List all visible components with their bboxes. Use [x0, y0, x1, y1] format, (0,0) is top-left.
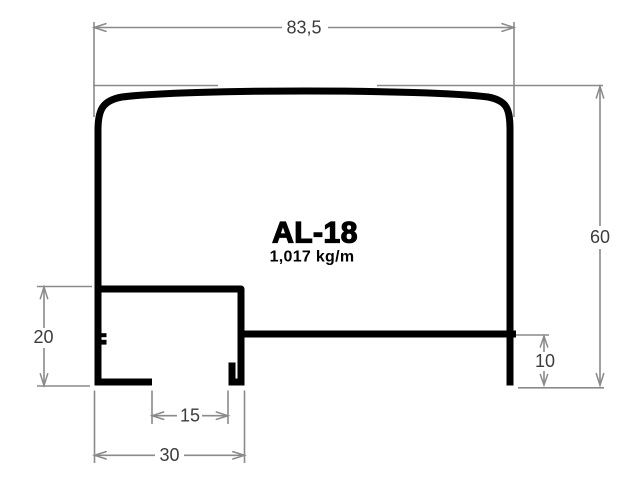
profile-name: AL-18 — [272, 217, 358, 250]
dimension-label-pocket-width: 30 — [159, 445, 179, 465]
dimension-label-overall-width: 83,5 — [286, 18, 321, 38]
dimension-label-flange-offset: 10 — [535, 351, 555, 371]
drawing-canvas: 83,5 60 20 10 — [0, 0, 627, 492]
profile-pocket-outline — [95, 289, 242, 384]
title-block: AL-18 1,017 kg/m — [270, 217, 358, 266]
dimension-flange-offset: 10 — [516, 335, 555, 385]
dimension-label-overall-height: 60 — [590, 227, 610, 247]
dimension-label-slot-width: 15 — [180, 406, 200, 426]
dimension-label-pocket-height: 20 — [33, 327, 53, 347]
dimension-slot-width: 15 — [152, 391, 228, 426]
profile-rib-lower — [102, 340, 107, 345]
profile-rib-upper — [102, 333, 107, 337]
profile-weight: 1,017 kg/m — [270, 249, 355, 266]
dimension-pocket-height: 20 — [33, 287, 92, 387]
dimension-overall-width: 83,5 — [94, 18, 514, 118]
technical-drawing: 83,5 60 20 10 — [0, 0, 627, 492]
dimension-pocket-width: 30 — [95, 391, 245, 466]
